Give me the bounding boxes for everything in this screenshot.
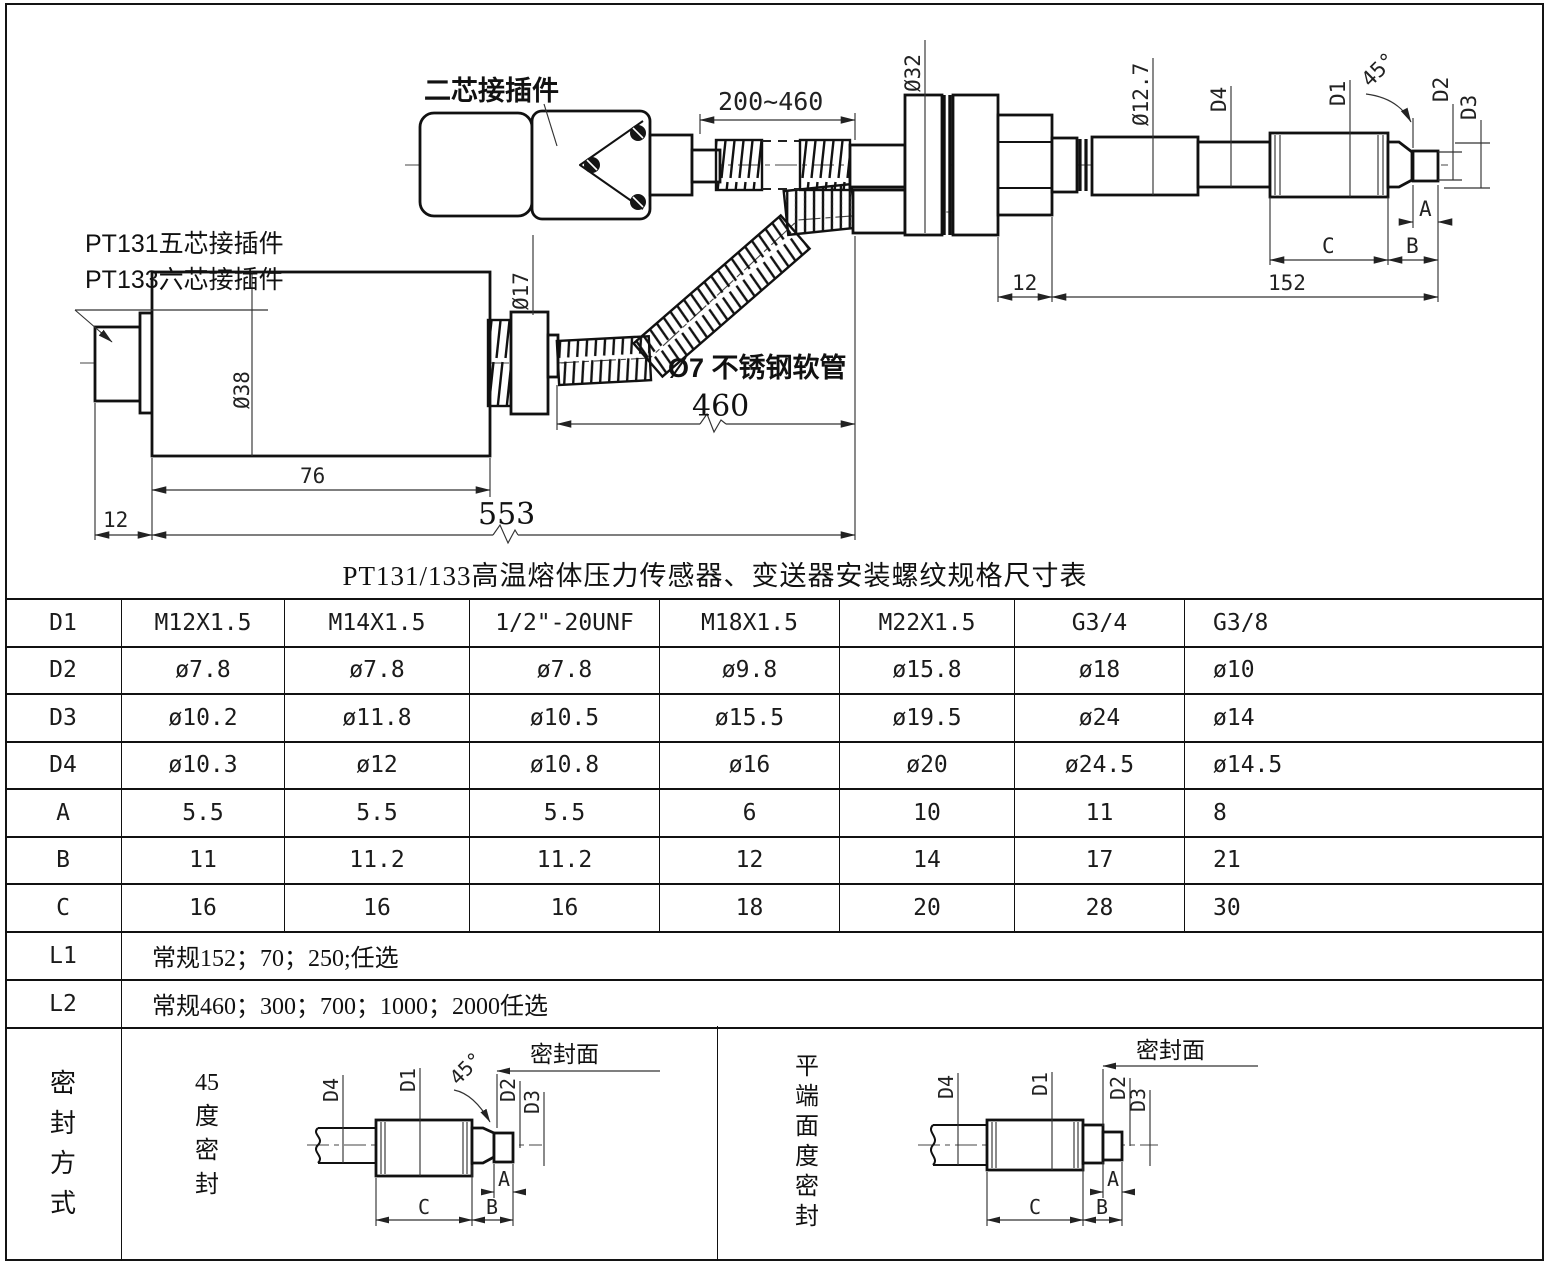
dim-a: A bbox=[1400, 185, 1451, 228]
cell: 17 bbox=[1015, 838, 1185, 886]
seal-flat-diagram: D4 D1 密封面 D2 D3 A bbox=[718, 1026, 1542, 1261]
cell: 16 bbox=[470, 885, 660, 933]
dim-76: 76 bbox=[152, 458, 490, 540]
seal-flat-cell: 平端面度密封 D4 bbox=[718, 1026, 1544, 1261]
d3-dim-label: D3 bbox=[1457, 95, 1481, 120]
cell: 28 bbox=[1015, 885, 1185, 933]
hose-label: Ø7 不锈钢软管 bbox=[668, 353, 847, 383]
d1-label: D1 bbox=[1028, 1072, 1052, 1096]
d4-label: D4 bbox=[934, 1075, 958, 1099]
cell: 14 bbox=[840, 838, 1015, 886]
len-range-label: 200~460 bbox=[718, 87, 823, 116]
cell: ø24 bbox=[1015, 695, 1185, 743]
cell: ø7.8 bbox=[285, 648, 470, 696]
d1-label: D1 bbox=[396, 1068, 420, 1092]
seal-header-cell: 密封方式 bbox=[5, 1026, 122, 1261]
phi38-dim-label: Ø38 bbox=[230, 371, 254, 409]
cell: ø11.8 bbox=[285, 695, 470, 743]
cell: 5.5 bbox=[122, 790, 285, 838]
cell: G3/8 bbox=[1185, 600, 1544, 648]
table-row-l2: L2 常规460；300；700；1000；2000任选 bbox=[5, 981, 1544, 1029]
cell: ø20 bbox=[840, 743, 1015, 791]
cell: G3/4 bbox=[1015, 600, 1185, 648]
cell: ø15.8 bbox=[840, 648, 1015, 696]
cell: ø16 bbox=[660, 743, 840, 791]
cell: ø15.5 bbox=[660, 695, 840, 743]
table-row-d4: D4 ø10.3 ø12 ø10.8 ø16 ø20 ø24.5 ø14.5 bbox=[5, 743, 1544, 791]
cell: 20 bbox=[840, 885, 1015, 933]
dim-d3: D3 bbox=[1444, 95, 1490, 188]
c-dim-label: C bbox=[1322, 234, 1335, 258]
phi17-dim-label: Ø17 bbox=[509, 272, 533, 310]
d3-label: D3 bbox=[520, 1090, 544, 1114]
table-title: PT131/133高温熔体压力传感器、变送器安装螺纹规格尺寸表 bbox=[0, 551, 1430, 595]
two-core-connector-label: 二芯接插件 bbox=[424, 76, 559, 106]
cell: 16 bbox=[122, 885, 285, 933]
seal-45-diagram: D4 D1 45° 密封面 D2 D3 bbox=[122, 1026, 716, 1261]
cell: 12 bbox=[660, 838, 840, 886]
cell: M14X1.5 bbox=[285, 600, 470, 648]
cell: M12X1.5 bbox=[122, 600, 285, 648]
row-label: A bbox=[5, 790, 122, 838]
cell: M22X1.5 bbox=[840, 600, 1015, 648]
row-label: B bbox=[5, 838, 122, 886]
cell: ø10.8 bbox=[470, 743, 660, 791]
cell: ø10.5 bbox=[470, 695, 660, 743]
drawing-sheet: Ø38 Ø17 PT131五芯接插件 PT133六芯接插件 Ø7 不锈钢软管 bbox=[0, 0, 1551, 1267]
cell: ø7.8 bbox=[122, 648, 285, 696]
cell: ø10.2 bbox=[122, 695, 285, 743]
cell: 30 bbox=[1185, 885, 1544, 933]
d4-label: D4 bbox=[319, 1078, 343, 1102]
phi32-dim-label: Ø32 bbox=[901, 54, 925, 92]
cell: ø10 bbox=[1185, 648, 1544, 696]
row-label: L1 bbox=[5, 933, 122, 981]
deg45-label: 45° bbox=[1357, 48, 1401, 92]
pt131-label: PT131五芯接插件 bbox=[85, 230, 284, 258]
cell: M18X1.5 bbox=[660, 600, 840, 648]
cell: 5.5 bbox=[470, 790, 660, 838]
len-152-label: 152 bbox=[1268, 271, 1306, 295]
a-label: A bbox=[1107, 1167, 1119, 1191]
deg45-label: 45° bbox=[445, 1047, 488, 1090]
dim-12-left: 12 bbox=[95, 403, 152, 540]
cell: ø19.5 bbox=[840, 695, 1015, 743]
table-row-l1: L1 常规152；70；250;任选 bbox=[5, 933, 1544, 981]
l1-value: 常规152；70；250;任选 bbox=[122, 933, 1544, 981]
cell: 16 bbox=[285, 885, 470, 933]
a-label: A bbox=[498, 1167, 510, 1191]
len-12-left-label: 12 bbox=[103, 508, 128, 532]
b-label: B bbox=[1096, 1195, 1108, 1219]
b-label: B bbox=[486, 1195, 498, 1219]
dim-c-b: C B bbox=[987, 1165, 1122, 1226]
cell: 6 bbox=[660, 790, 840, 838]
cell: ø9.8 bbox=[660, 648, 840, 696]
table-row-c: C 16 16 16 18 20 28 30 bbox=[5, 885, 1544, 933]
mounting-flange bbox=[905, 95, 1052, 235]
cell: ø7.8 bbox=[470, 648, 660, 696]
b-dim-label: B bbox=[1406, 234, 1419, 258]
len-553-label: 553 bbox=[478, 497, 535, 532]
sensor-assembly-drawing: Ø38 Ø17 PT131五芯接插件 PT133六芯接插件 Ø7 不锈钢软管 bbox=[0, 0, 1551, 548]
table-row-d3: D3 ø10.2 ø11.8 ø10.5 ø15.5 ø19.5 ø24 ø14 bbox=[5, 695, 1544, 743]
row-label: C bbox=[5, 885, 122, 933]
phi12-7-dim-label: Ø12.7 bbox=[1129, 63, 1153, 126]
table-row-a: A 5.5 5.5 5.5 6 10 11 8 bbox=[5, 790, 1544, 838]
seal-header-label: 密封方式 bbox=[48, 1064, 78, 1224]
pt133-label: PT133六芯接插件 bbox=[85, 266, 284, 294]
c-label: C bbox=[1029, 1195, 1041, 1219]
len-12-flange-label: 12 bbox=[1012, 271, 1037, 295]
cell: 1/2"-20UNF bbox=[470, 600, 660, 648]
cell: 8 bbox=[1185, 790, 1544, 838]
seal-method-section: 密封方式 45度密封 bbox=[5, 1026, 1544, 1261]
seal-face-label: 密封面 bbox=[530, 1041, 599, 1067]
row-label: L2 bbox=[5, 981, 122, 1029]
probe-shaft bbox=[1052, 133, 1438, 197]
len-460-label: 460 bbox=[692, 389, 749, 424]
dim-a: A bbox=[482, 1164, 525, 1198]
cell: 5.5 bbox=[285, 790, 470, 838]
cell: ø18 bbox=[1015, 648, 1185, 696]
dim-a: A bbox=[1091, 1162, 1134, 1198]
row-label: D2 bbox=[5, 648, 122, 696]
table-row-d2: D2 ø7.8 ø7.8 ø7.8 ø9.8 ø15.8 ø18 ø10 bbox=[5, 648, 1544, 696]
two-core-connector bbox=[420, 111, 720, 219]
c-label: C bbox=[418, 1195, 430, 1219]
l2-value: 常规460；300；700；1000；2000任选 bbox=[122, 981, 1544, 1029]
d3-label: D3 bbox=[1126, 1088, 1150, 1112]
seal-face-label: 密封面 bbox=[1136, 1037, 1205, 1063]
d2-label: D2 bbox=[496, 1078, 520, 1102]
cell: ø14.5 bbox=[1185, 743, 1544, 791]
len-76-label: 76 bbox=[300, 464, 325, 488]
d1-dim-label: D1 bbox=[1326, 81, 1350, 106]
dim-553: 553 bbox=[152, 497, 855, 543]
seal-45-cell: 45度密封 D4 bbox=[122, 1026, 718, 1261]
row-label: D3 bbox=[5, 695, 122, 743]
seal-45-part bbox=[316, 1120, 513, 1176]
cell: 11 bbox=[1015, 790, 1185, 838]
cell: ø10.3 bbox=[122, 743, 285, 791]
a-dim-label: A bbox=[1419, 197, 1432, 221]
transducer-body bbox=[95, 272, 558, 456]
cell: 21 bbox=[1185, 838, 1544, 886]
cell: 11.2 bbox=[285, 838, 470, 886]
cell: ø24.5 bbox=[1015, 743, 1185, 791]
cell: ø12 bbox=[285, 743, 470, 791]
dim-200-460: 200~460 bbox=[700, 87, 855, 140]
cell: 11 bbox=[122, 838, 285, 886]
cell: ø14 bbox=[1185, 695, 1544, 743]
cell: 11.2 bbox=[470, 838, 660, 886]
row-label: D4 bbox=[5, 743, 122, 791]
table-row-d1: D1 M12X1.5 M14X1.5 1/2"-20UNF M18X1.5 M2… bbox=[5, 600, 1544, 648]
table-row-b: B 11 11.2 11.2 12 14 17 21 bbox=[5, 838, 1544, 886]
cell: 18 bbox=[660, 885, 840, 933]
cell: 10 bbox=[840, 790, 1015, 838]
d2-dim-label: D2 bbox=[1429, 77, 1453, 102]
thread-spec-table: D1 M12X1.5 M14X1.5 1/2"-20UNF M18X1.5 M2… bbox=[5, 598, 1544, 1029]
d4-dim-label: D4 bbox=[1207, 87, 1231, 112]
row-label: D1 bbox=[5, 600, 122, 648]
chamfer-45-callout: 45° bbox=[445, 1047, 490, 1122]
